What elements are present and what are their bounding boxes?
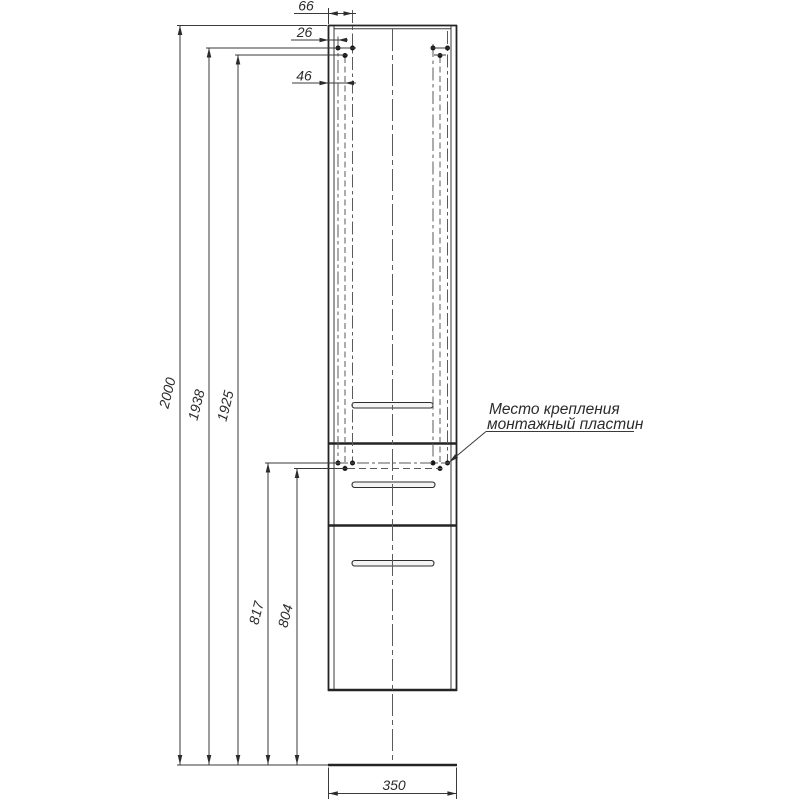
dim-label-1925: 1925 — [214, 389, 237, 423]
dim-label-26: 26 — [296, 24, 313, 40]
arrowhead — [329, 791, 338, 796]
dim-label-350: 350 — [382, 777, 406, 793]
arrowhead — [320, 38, 329, 42]
arrowhead — [345, 81, 354, 85]
dim-label-2000: 2000 — [155, 376, 178, 411]
arrowhead — [266, 755, 271, 765]
arrowhead — [447, 791, 456, 796]
arrowhead — [178, 26, 183, 36]
arrowhead — [178, 755, 183, 765]
dimension-46: 46 — [292, 68, 356, 86]
arrowhead — [236, 55, 241, 65]
dimension-817: 817 — [246, 463, 271, 765]
dimension-26: 26 — [291, 24, 348, 42]
dimension-1938: 1938 — [185, 48, 212, 765]
dimension-1925: 1925 — [214, 55, 241, 765]
arrowhead — [295, 755, 300, 765]
dim-label-66: 66 — [298, 0, 314, 14]
arrowhead — [338, 38, 347, 42]
dimension-2000: 2000 — [155, 26, 182, 765]
arrowhead — [266, 463, 271, 473]
arrowhead — [236, 755, 241, 765]
dim-label-46: 46 — [296, 68, 312, 84]
arrowhead — [207, 48, 212, 58]
arrowhead — [207, 755, 212, 765]
arrowhead — [329, 11, 338, 15]
mounting-plate-annotation: Место крепления монтажный пластин — [449, 401, 644, 462]
dimension-804: 804 — [275, 469, 300, 765]
drawer-handle — [352, 482, 435, 488]
technical-drawing-page: 66 26 46 2000 1938 1925 817 — [0, 0, 800, 800]
dimension-66: 66 — [294, 0, 356, 24]
arrowhead — [320, 81, 329, 85]
annotation-line-2: монтажный пластин — [487, 416, 644, 433]
dim-label-1938: 1938 — [185, 388, 208, 422]
cabinet-technical-drawing: 66 26 46 2000 1938 1925 817 — [0, 0, 800, 800]
arrowhead — [344, 11, 353, 15]
center-lines — [338, 10, 448, 763]
dimension-350: 350 — [329, 768, 457, 800]
arrowhead — [295, 469, 300, 479]
dim-label-804: 804 — [275, 602, 296, 629]
dim-label-817: 817 — [246, 598, 267, 626]
